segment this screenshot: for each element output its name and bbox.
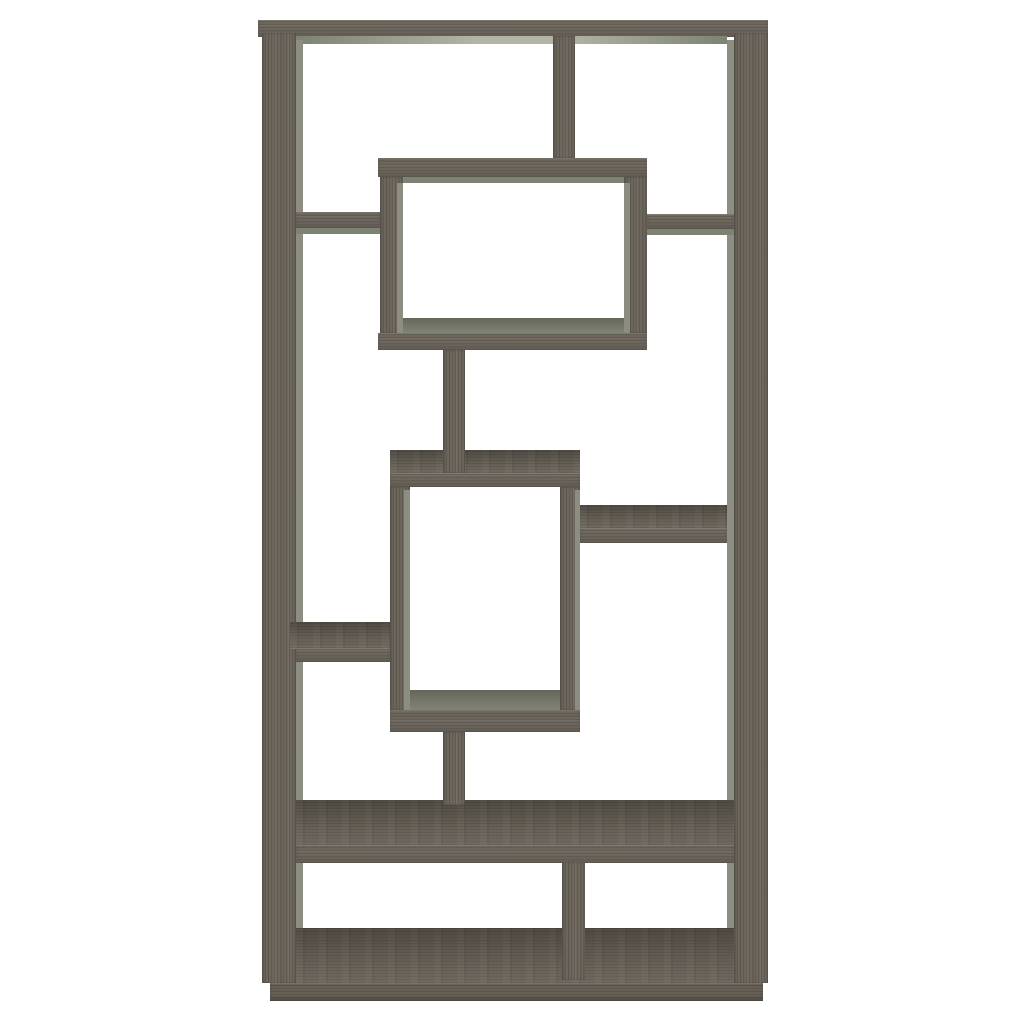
bottom-shelf-surface xyxy=(296,928,734,984)
right-upright xyxy=(734,33,768,983)
lower-stem xyxy=(443,732,465,805)
bottom-divider xyxy=(562,862,585,980)
top-divider xyxy=(553,36,575,158)
bookcase-product-photo xyxy=(0,0,1024,1024)
middle-left-shelf-edge xyxy=(296,648,390,662)
middle-right-shelf-surface xyxy=(580,505,727,529)
big-shelf-edge xyxy=(296,845,734,863)
upper-box-top-underside xyxy=(403,177,624,183)
base-board xyxy=(270,983,763,1001)
middle-right-shelf-edge xyxy=(580,528,727,543)
upper-box-right-wall-inner xyxy=(624,183,630,333)
middle-box-bottom xyxy=(390,710,580,732)
upper-left-shelf-underside xyxy=(296,228,380,234)
upper-left-shelf xyxy=(296,212,380,228)
middle-box-left-wall-inner xyxy=(404,490,410,710)
top-board xyxy=(258,20,768,37)
upper-box-left-wall-inner xyxy=(397,183,403,333)
upper-stem xyxy=(443,350,465,473)
top-board-underside xyxy=(296,36,727,44)
middle-box-top-surface xyxy=(390,450,580,474)
upper-right-shelf xyxy=(647,214,734,229)
upper-right-shelf-underside xyxy=(647,229,734,235)
middle-left-shelf-surface xyxy=(290,622,390,649)
big-shelf-surface xyxy=(296,800,734,846)
left-upright xyxy=(262,33,296,983)
middle-box-top-edge xyxy=(390,473,580,487)
upper-box-floor xyxy=(403,318,624,333)
upper-box-top xyxy=(378,158,647,177)
middle-box-floor xyxy=(410,690,560,710)
upper-box-bottom xyxy=(378,333,647,350)
